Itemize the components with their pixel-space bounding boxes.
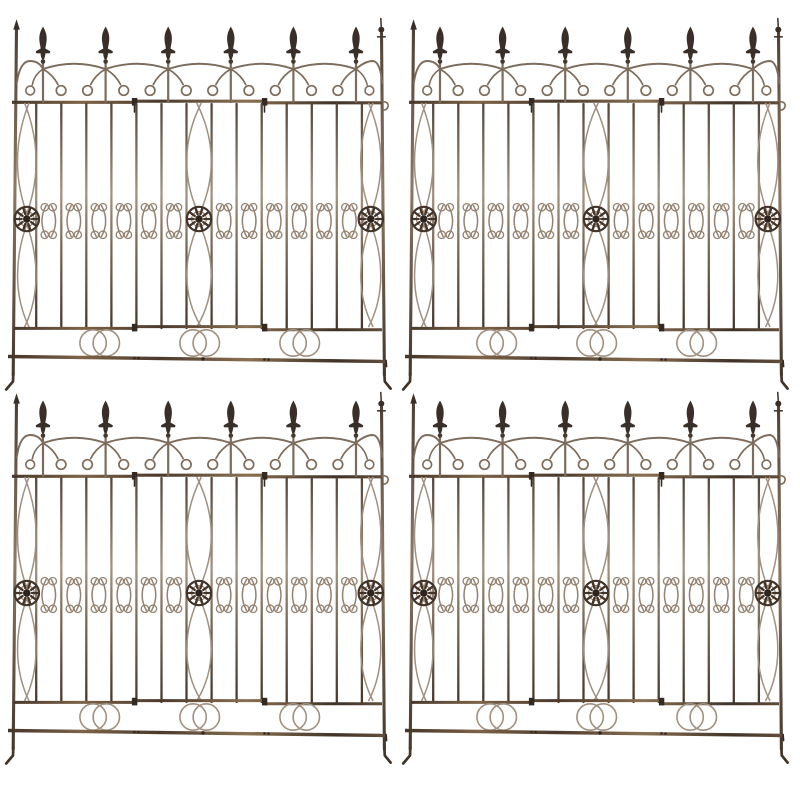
product-photo <box>0 0 800 800</box>
fence-panel-3 <box>3 375 395 767</box>
fence-panel-2 <box>400 1 792 393</box>
fence-panel-1 <box>3 1 395 393</box>
fence-panel-4 <box>400 375 792 767</box>
